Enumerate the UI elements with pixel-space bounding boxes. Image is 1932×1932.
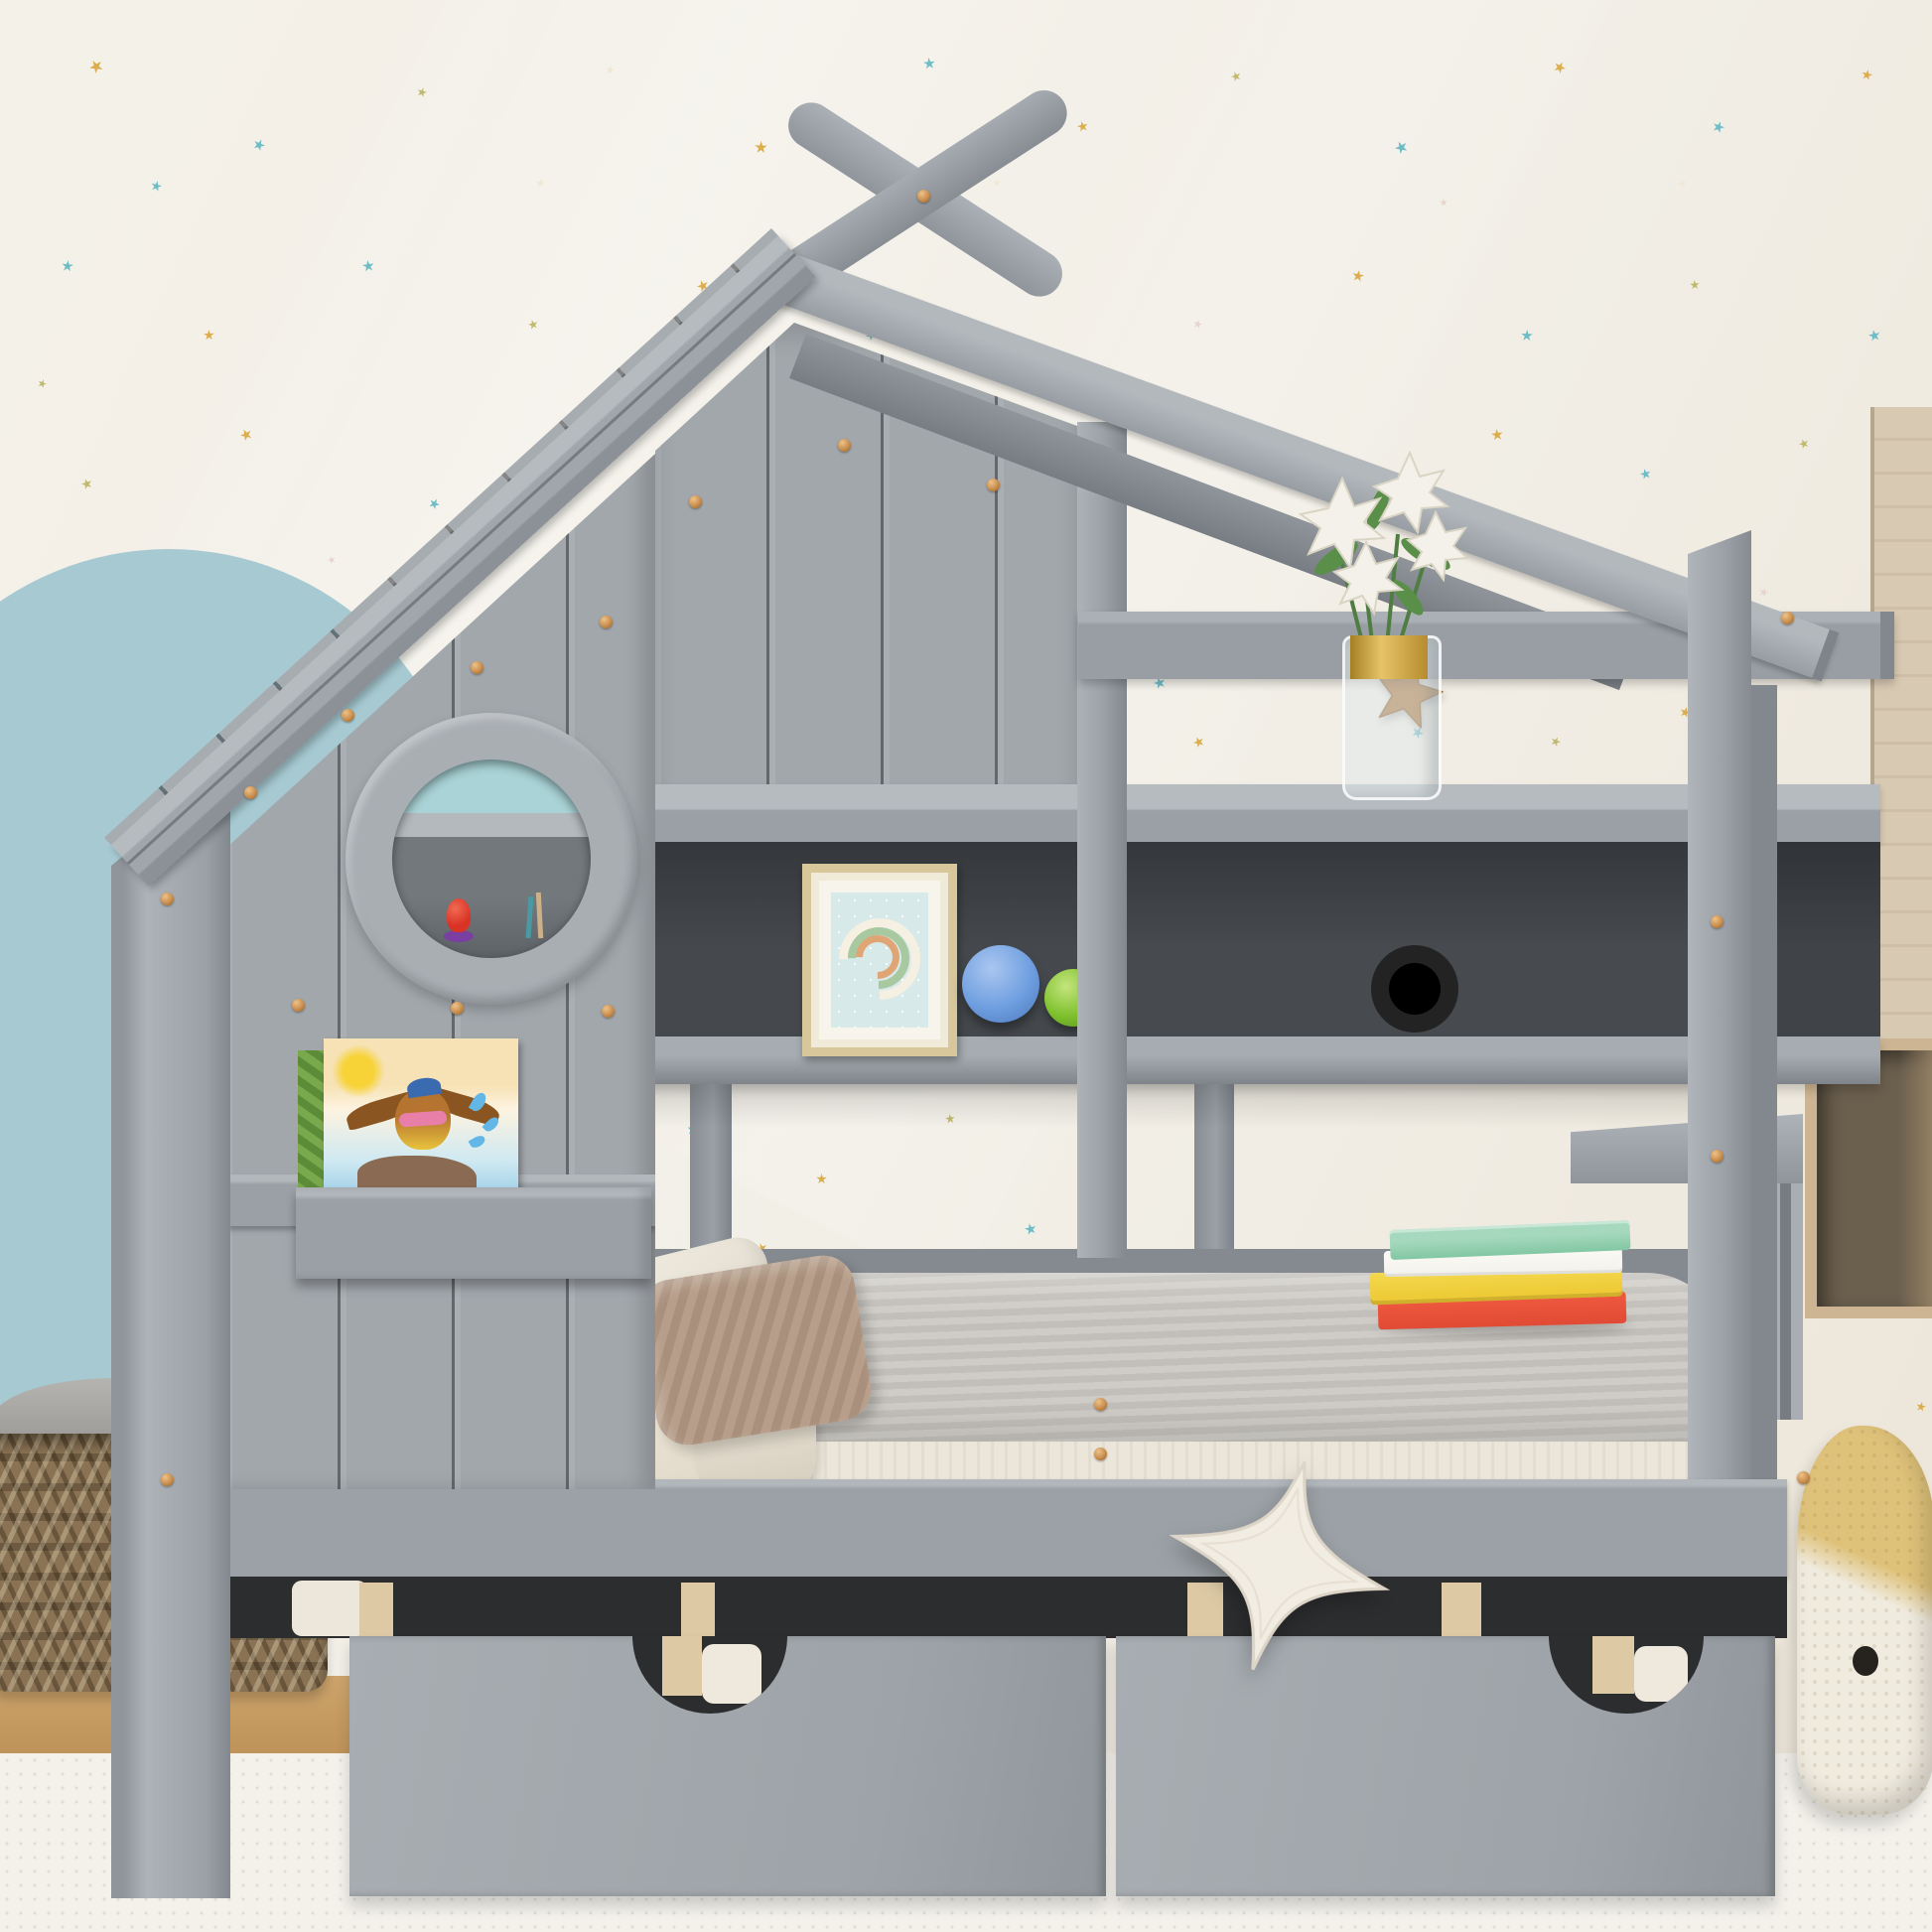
copper-screw bbox=[292, 999, 305, 1012]
copper-screw bbox=[1094, 1398, 1107, 1411]
copper-screw bbox=[1711, 1150, 1724, 1163]
copper-screw bbox=[451, 1002, 464, 1015]
copper-screw bbox=[1094, 1448, 1107, 1460]
copper-screw bbox=[602, 1005, 615, 1018]
copper-screw bbox=[161, 1473, 174, 1486]
nursery-photo bbox=[0, 0, 1932, 1932]
copper-screw bbox=[1797, 1471, 1810, 1484]
copper-screw bbox=[471, 661, 483, 674]
copper-screw bbox=[161, 893, 174, 905]
copper-screw bbox=[1711, 915, 1724, 928]
copper-screw bbox=[342, 709, 354, 722]
copper-screw bbox=[917, 190, 930, 203]
hardware-screws bbox=[0, 0, 1932, 1932]
copper-screw bbox=[689, 495, 702, 508]
copper-screw bbox=[244, 786, 257, 799]
copper-screw bbox=[1781, 612, 1794, 624]
copper-screw bbox=[600, 616, 613, 628]
copper-screw bbox=[838, 439, 851, 452]
copper-screw bbox=[987, 479, 1000, 491]
